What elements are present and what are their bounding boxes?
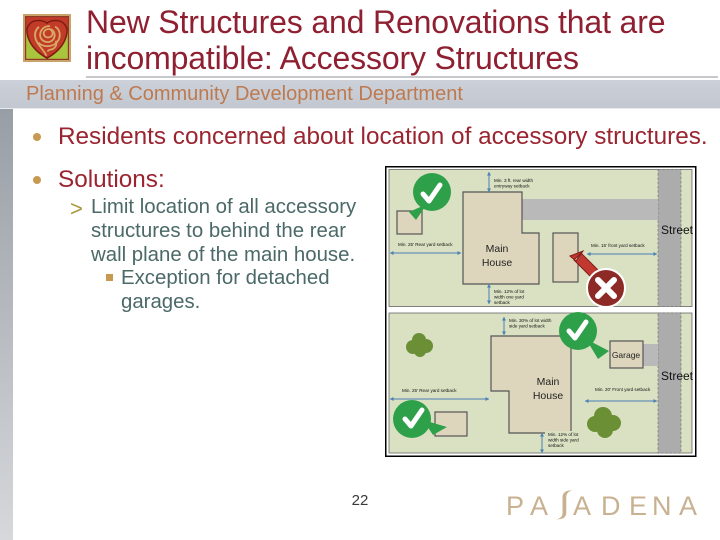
svg-text:setback: setback xyxy=(548,443,565,448)
svg-text:Min. 30% of lot width: Min. 30% of lot width xyxy=(509,318,552,323)
svg-text:Street: Street xyxy=(661,223,694,237)
svg-text:P: P xyxy=(506,491,524,521)
svg-text:Min. 20' Front yard setback: Min. 20' Front yard setback xyxy=(595,387,651,392)
svg-text:Garage: Garage xyxy=(612,350,641,360)
svg-text:Min. 12% of lot: Min. 12% of lot xyxy=(548,432,579,437)
svg-text:Street: Street xyxy=(661,369,694,383)
svg-text:side yard setback: side yard setback xyxy=(509,324,545,329)
svg-text:Min. 3 ft. rear width: Min. 3 ft. rear width xyxy=(494,178,534,183)
svg-text:width side yard: width side yard xyxy=(548,438,579,443)
svg-text:House: House xyxy=(533,390,564,402)
svg-text:N: N xyxy=(652,491,672,521)
svg-text:Min. 15' front yard setback: Min. 15' front yard setback xyxy=(591,243,645,248)
svg-text:width one yard: width one yard xyxy=(494,295,524,300)
svg-text:Min. 25' Rear yard setback: Min. 25' Rear yard setback xyxy=(402,388,457,393)
svg-text:Main: Main xyxy=(537,376,560,388)
svg-text:Min. 12% of lot: Min. 12% of lot xyxy=(494,289,525,294)
svg-text:A: A xyxy=(530,491,548,521)
svg-text:House: House xyxy=(482,257,513,269)
svg-text:entryway setback: entryway setback xyxy=(494,184,530,189)
svg-text:Main: Main xyxy=(486,243,509,255)
svg-text:A: A xyxy=(679,491,697,521)
svg-text:A: A xyxy=(573,491,591,521)
svg-text:D: D xyxy=(601,491,621,521)
svg-text:setback: setback xyxy=(494,300,511,305)
svg-text:E: E xyxy=(629,491,647,521)
svg-text:Min. 25' Rear yard setback: Min. 25' Rear yard setback xyxy=(398,242,453,247)
